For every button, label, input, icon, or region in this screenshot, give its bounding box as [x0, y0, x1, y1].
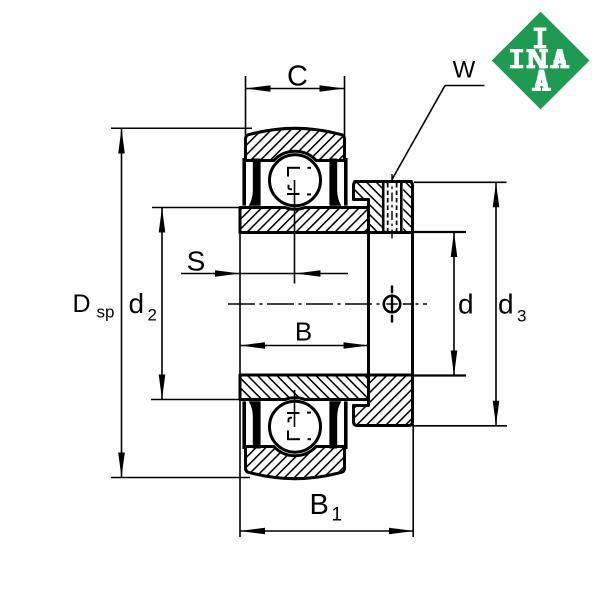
- svg-text:S: S: [187, 246, 206, 277]
- svg-text:3: 3: [517, 307, 526, 326]
- svg-text:C: C: [287, 61, 308, 93]
- svg-text:W: W: [453, 57, 476, 84]
- svg-text:2: 2: [148, 306, 157, 325]
- svg-text:sp: sp: [97, 303, 115, 322]
- svg-text:B: B: [295, 317, 312, 347]
- svg-text:1: 1: [332, 505, 343, 526]
- svg-text:d: d: [498, 289, 514, 320]
- svg-text:d: d: [129, 288, 145, 319]
- svg-text:d: d: [458, 289, 474, 320]
- svg-text:D: D: [73, 290, 91, 318]
- svg-text:B: B: [310, 489, 329, 521]
